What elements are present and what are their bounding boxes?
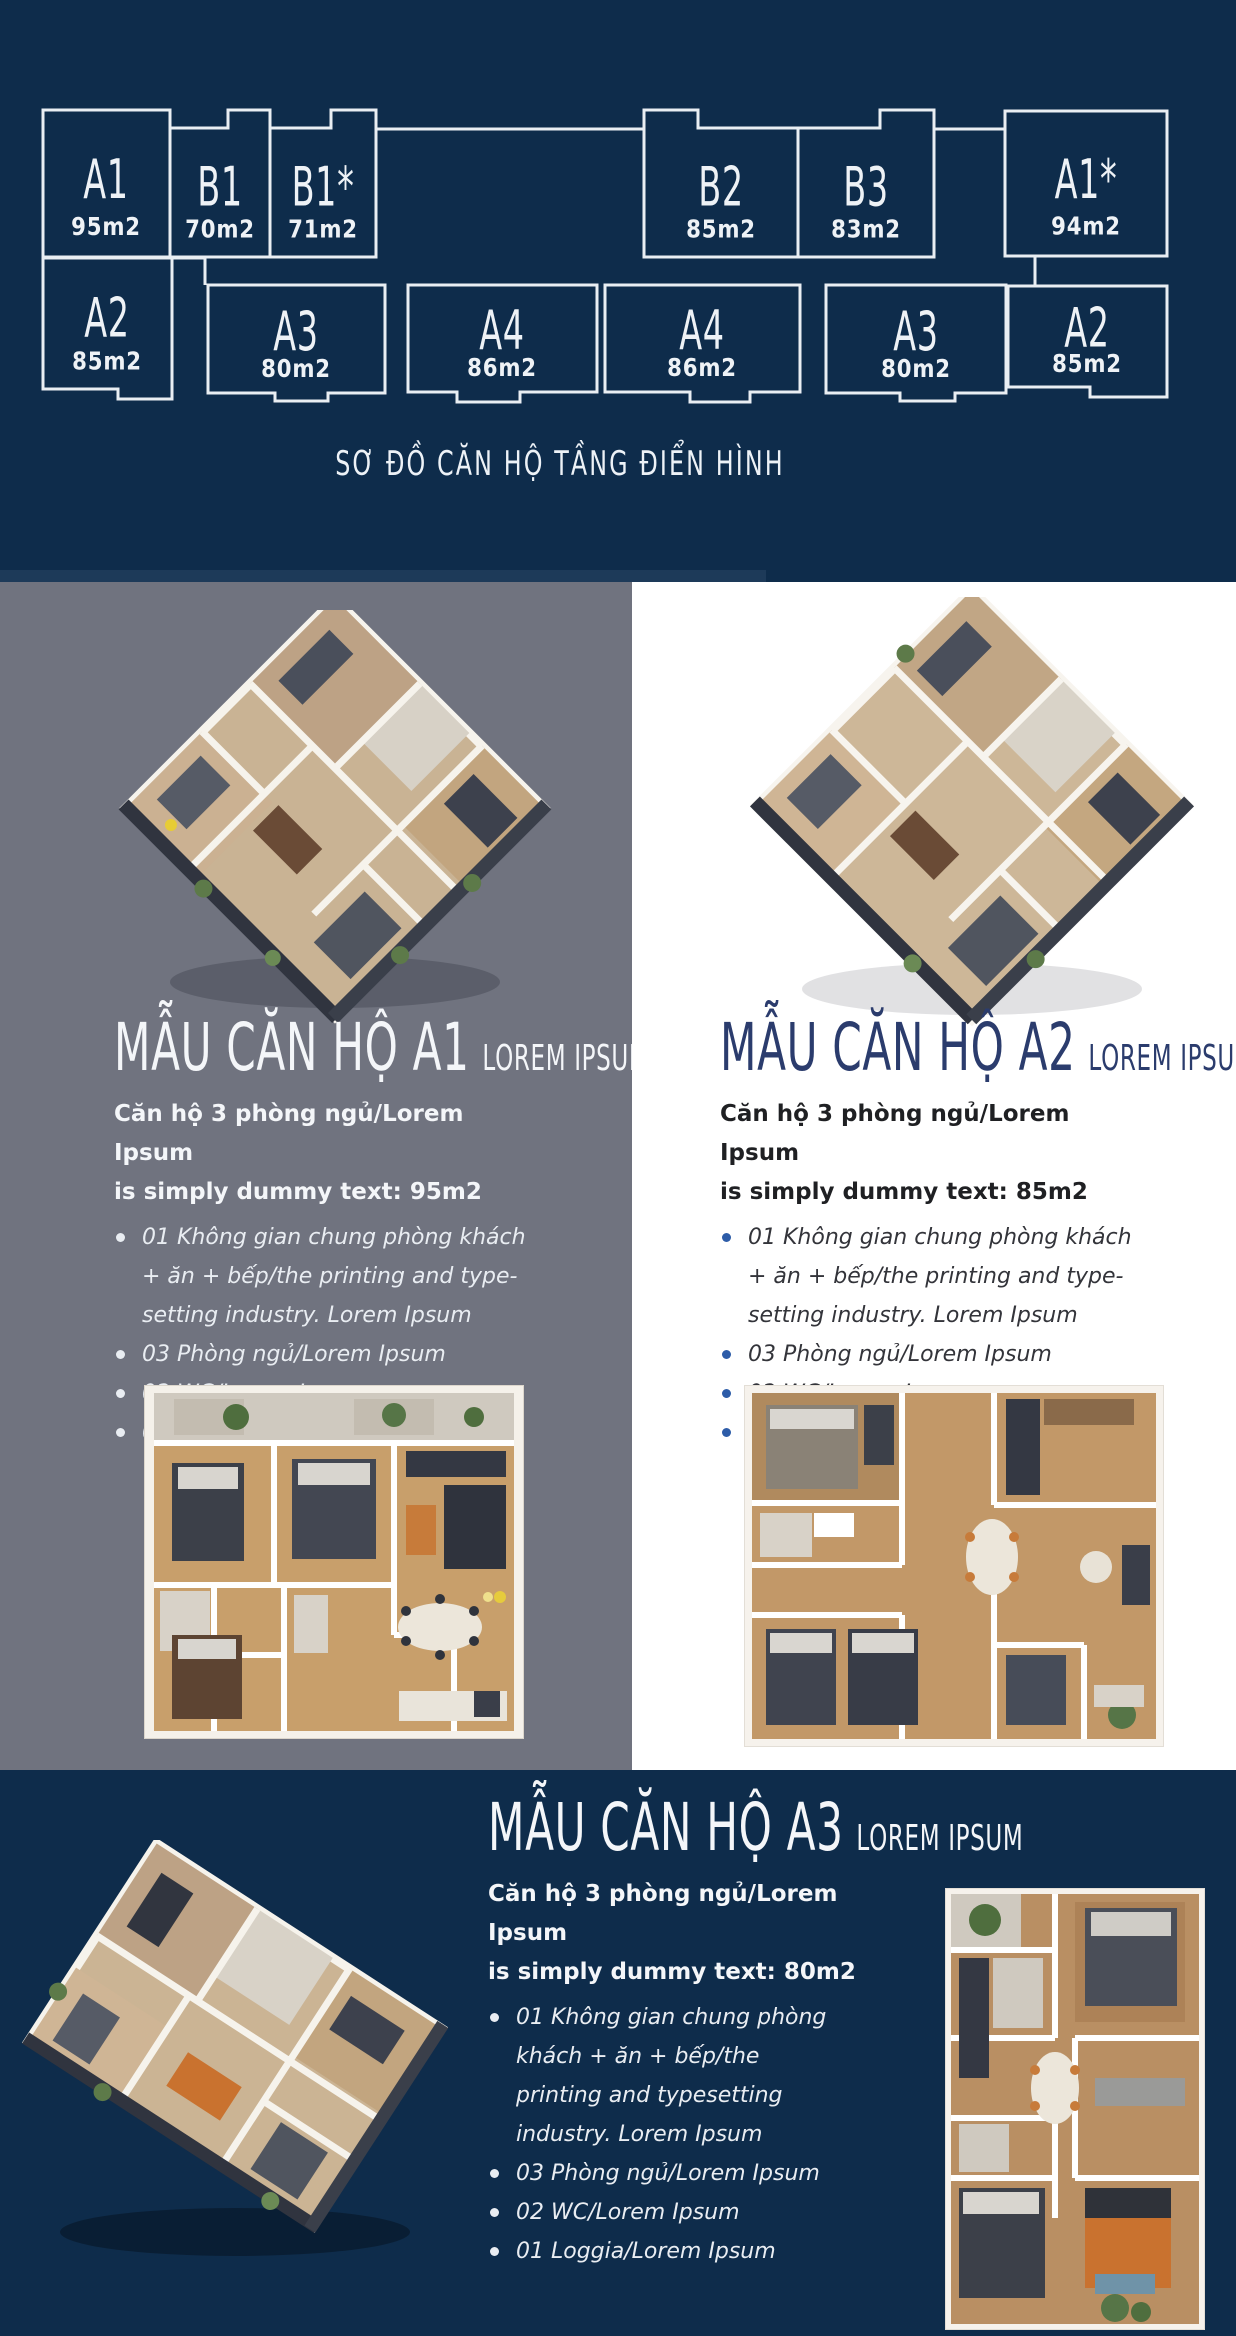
unit-a3-panel: MẪU CĂN HỘ A3LOREM IPSUM Căn hộ 3 phòng … xyxy=(0,1770,1236,2336)
list-item: 01 Không gian chung phòng khách + ăn + b… xyxy=(488,1998,836,2154)
list-item: 01 Không gian chung phòng khách + ăn + b… xyxy=(114,1218,528,1335)
unit-a1-title: MẪU CĂN HỘ A1 xyxy=(114,1009,470,1086)
list-item: 03 Phòng ngủ/Lorem Ipsum xyxy=(720,1335,1134,1374)
unit-a2-floorplan xyxy=(744,1385,1164,1747)
unit-code-label: B2 xyxy=(698,155,743,219)
list-item: 03 Phòng ngủ/Lorem Ipsum xyxy=(488,2154,836,2193)
unit-code-label: A1* xyxy=(1055,148,1118,212)
unit-a2-panel: MẪU CĂN HỘ A2LOREM IPSUM Căn hộ 3 phòng … xyxy=(632,582,1236,1770)
diagram-caption-text: SƠ ĐỒ CĂN HỘ TẦNG ĐIỂN HÌNH xyxy=(335,444,784,484)
unit-area-label: 80m2 xyxy=(261,354,331,383)
unit-a1-title-row: MẪU CĂN HỘ A1LOREM IPSUM xyxy=(114,1015,389,1081)
unit-a3-title-sub: LOREM IPSUM xyxy=(856,1818,1023,1859)
unit-a3-3d-render xyxy=(10,1840,470,2270)
unit-area-label: 85m2 xyxy=(1052,349,1122,378)
unit-a1-panel: MẪU CĂN HỘ A1LOREM IPSUM Căn hộ 3 phòng … xyxy=(0,582,632,1770)
unit-a3-desc-line1: Căn hộ 3 phòng ngủ/Lorem Ipsum xyxy=(488,1875,918,1953)
unit-a3-title-row: MẪU CĂN HỘ A3LOREM IPSUM xyxy=(488,1795,763,1861)
unit-a2-desc-line1: Căn hộ 3 phòng ngủ/Lorem Ipsum xyxy=(720,1095,1150,1173)
unit-a2-desc-line2: is simply dummy text: 85m2 xyxy=(720,1173,1150,1212)
unit-a1-desc-line2: is simply dummy text: 95m2 xyxy=(114,1173,544,1212)
unit-area-label: 85m2 xyxy=(686,215,756,244)
unit-code-label: B3 xyxy=(843,155,888,219)
unit-a1-3d-render xyxy=(105,610,565,1030)
unit-a3-title: MẪU CĂN HỘ A3 xyxy=(488,1789,844,1866)
typical-floor-diagram: A195m2B170m2B1*71m2B285m2B383m2A1*94m2A2… xyxy=(0,0,1236,582)
unit-area-label: 86m2 xyxy=(667,353,737,382)
unit-area-label: 95m2 xyxy=(71,212,141,241)
list-item: 01 Loggia/Lorem Ipsum xyxy=(488,2232,836,2271)
unit-a3-floorplan xyxy=(945,1888,1205,2330)
unit-code-label: A2 xyxy=(84,286,129,350)
unit-a2-title-row: MẪU CĂN HỘ A2LOREM IPSUM xyxy=(720,1015,995,1081)
unit-a1-title-sub: LOREM IPSUM xyxy=(482,1038,649,1079)
unit-code-label: B1 xyxy=(197,155,242,219)
unit-a3-feature-list: 01 Không gian chung phòng khách + ăn + b… xyxy=(488,1998,836,2271)
unit-area-label: 83m2 xyxy=(831,215,901,244)
unit-area-label: 71m2 xyxy=(288,215,358,244)
brochure-page: { "colors": { "navy_bg": "#0e2c4b", "gra… xyxy=(0,0,1236,2336)
unit-code-label: A1 xyxy=(83,148,128,212)
unit-area-label: 85m2 xyxy=(72,347,142,376)
diagram-caption: SƠ ĐỒ CĂN HỘ TẦNG ĐIỂN HÌNH xyxy=(0,444,1120,484)
unit-a1-floorplan xyxy=(144,1385,524,1739)
header-bottom-band xyxy=(0,570,766,582)
unit-a3-desc-line2: is simply dummy text: 80m2 xyxy=(488,1953,918,1992)
unit-a1-desc-line1: Căn hộ 3 phòng ngủ/Lorem Ipsum xyxy=(114,1095,544,1173)
unit-area-label: 70m2 xyxy=(185,215,255,244)
list-item: 01 Không gian chung phòng khách + ăn + b… xyxy=(720,1218,1134,1335)
unit-code-label: B1* xyxy=(292,155,355,219)
unit-a2-3d-render xyxy=(732,597,1212,1037)
unit-area-label: 94m2 xyxy=(1051,212,1121,241)
list-item: 02 WC/Lorem Ipsum xyxy=(488,2193,836,2232)
unit-a2-title-sub: LOREM IPSUM xyxy=(1088,1038,1236,1079)
unit-a2-title: MẪU CĂN HỘ A2 xyxy=(720,1009,1076,1086)
header-section: A195m2B170m2B1*71m2B285m2B383m2A1*94m2A2… xyxy=(0,0,1236,582)
unit-a3-textblock: MẪU CĂN HỘ A3LOREM IPSUM Căn hộ 3 phòng … xyxy=(488,1795,918,2271)
list-item: 03 Phòng ngủ/Lorem Ipsum xyxy=(114,1335,528,1374)
unit-area-label: 80m2 xyxy=(881,354,951,383)
unit-area-label: 86m2 xyxy=(467,353,537,382)
